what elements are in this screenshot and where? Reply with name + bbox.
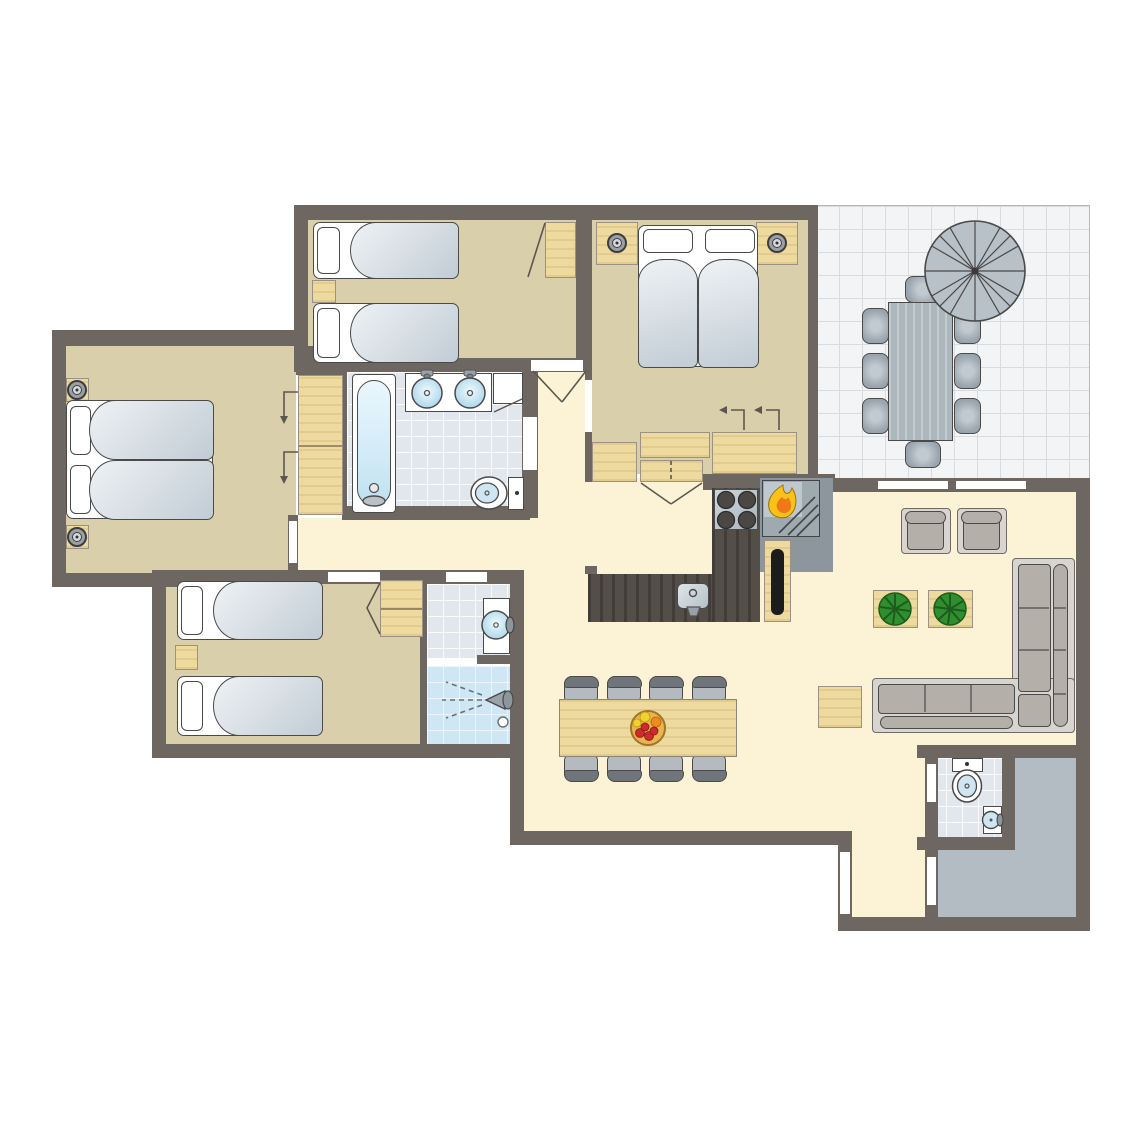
stove xyxy=(714,489,758,530)
sofa-back-column xyxy=(1053,564,1068,727)
armchair-back xyxy=(905,511,946,524)
wall-living-bottom xyxy=(510,831,852,845)
wall-master-top xyxy=(52,330,308,346)
blanket xyxy=(638,259,698,368)
closet xyxy=(712,432,797,474)
single-bed xyxy=(177,676,322,736)
pillow xyxy=(317,227,340,274)
fireplace-hearth xyxy=(764,482,802,517)
armchair-back xyxy=(961,511,1002,524)
tv xyxy=(771,549,784,615)
door-gap-porch xyxy=(927,857,936,905)
door-gap-bedroom-bottom-left xyxy=(328,572,380,582)
dining-chair xyxy=(564,755,598,781)
pillow xyxy=(317,308,340,358)
wall-bottom-right xyxy=(838,917,1090,931)
single-bed xyxy=(313,222,458,279)
sofa-corner-seat xyxy=(1018,694,1051,727)
shower-floor xyxy=(427,666,510,744)
armchair xyxy=(957,508,1007,554)
basin-counter xyxy=(405,373,492,412)
wall-kitchen-stub xyxy=(585,566,597,574)
coffee-table xyxy=(818,686,862,728)
cushion-divider xyxy=(1019,607,1049,609)
pillow xyxy=(705,229,755,253)
blanket xyxy=(89,400,214,460)
wardrobe xyxy=(380,580,423,637)
pillow xyxy=(70,406,91,455)
chair-backrest xyxy=(564,676,599,688)
porch-floor-upper xyxy=(1015,758,1076,845)
dining-chair xyxy=(649,755,683,781)
cushion-divider xyxy=(970,685,972,712)
double-bed xyxy=(638,225,758,367)
bathtub xyxy=(357,380,391,506)
blanket xyxy=(213,581,323,640)
sofa-seat-row xyxy=(878,684,1015,714)
wall-block-right xyxy=(510,570,524,758)
wall-block-bottom xyxy=(152,744,524,758)
wall-wc-bottom xyxy=(917,837,1015,850)
blanket xyxy=(350,303,459,363)
single-bed xyxy=(177,581,322,640)
bathroom-shelf xyxy=(493,373,523,404)
armchair xyxy=(901,508,951,554)
door-gap-bedroom-top-right xyxy=(585,380,592,432)
chair-backrest xyxy=(564,770,599,782)
wardrobe-divider xyxy=(299,445,342,447)
porch-floor-lower xyxy=(938,845,1076,917)
window-terrace-door-1 xyxy=(878,481,948,489)
door-gap-entrance xyxy=(840,852,850,914)
door-gap-bathroom xyxy=(523,417,537,470)
closet xyxy=(592,442,637,482)
outdoor-chair xyxy=(954,308,981,344)
outdoor-chair xyxy=(862,308,889,344)
plant-table xyxy=(928,590,973,628)
outdoor-chair xyxy=(862,353,889,389)
sofa-seat-column xyxy=(1018,564,1051,692)
outdoor-chair xyxy=(905,276,941,303)
wardrobe xyxy=(298,375,343,515)
corridor-floor xyxy=(296,518,538,570)
wc-toilet-tank xyxy=(952,758,983,772)
cushion-divider xyxy=(924,685,926,712)
pillow xyxy=(181,586,203,635)
wall-shower-divider xyxy=(477,655,510,664)
wall-bedroom-divider xyxy=(576,205,592,372)
pillow xyxy=(181,681,203,731)
outdoor-chair xyxy=(905,441,941,468)
hall-floor xyxy=(538,372,585,478)
nightstand xyxy=(66,378,89,402)
nightstand xyxy=(756,222,798,265)
dining-chair xyxy=(692,755,726,781)
chair-backrest xyxy=(607,676,642,688)
wall-wc-top xyxy=(917,745,1076,758)
blanket xyxy=(89,460,214,520)
wc-basin-box xyxy=(983,806,1002,834)
wall-top xyxy=(294,205,815,220)
door-gap-wc xyxy=(927,764,936,802)
wardrobe-divider xyxy=(381,608,422,610)
kitchen-sink xyxy=(677,583,709,609)
blanket xyxy=(213,676,323,736)
washroom-basin-counter xyxy=(483,598,510,654)
door-gap-master xyxy=(289,521,297,563)
cushion-divider xyxy=(1019,649,1049,651)
outdoor-table xyxy=(888,302,953,441)
nightstand xyxy=(596,222,638,265)
dining-chair xyxy=(607,755,641,781)
sofa-back-row xyxy=(880,716,1013,729)
chair-backrest xyxy=(649,770,684,782)
outdoor-chair xyxy=(862,398,889,434)
wall-living-left xyxy=(510,758,524,831)
blanket xyxy=(350,222,459,279)
cushion-divider xyxy=(1054,649,1066,651)
cushion-divider xyxy=(1054,693,1066,695)
dining-table xyxy=(559,699,737,757)
door-gap-bedroom-top-left xyxy=(531,360,583,371)
fireplace xyxy=(762,480,820,537)
floor-plan xyxy=(0,0,1145,1145)
nightstand xyxy=(312,280,336,303)
outdoor-chair xyxy=(954,398,981,434)
outdoor-chair xyxy=(954,353,981,389)
closet xyxy=(640,460,703,482)
window-terrace-door-2 xyxy=(956,481,1026,489)
single-bed xyxy=(313,303,458,363)
chair-backrest xyxy=(607,770,642,782)
chair-backrest xyxy=(649,676,684,688)
wall-right xyxy=(1076,478,1090,931)
door-gap-washroom xyxy=(446,572,487,582)
entrance-hall-floor xyxy=(852,745,925,917)
pillow xyxy=(643,229,693,253)
pillow xyxy=(70,465,91,514)
wall-block-left xyxy=(152,570,166,758)
chair-backrest xyxy=(692,676,727,688)
nightstand xyxy=(66,525,89,549)
wall-wc-right xyxy=(1002,745,1015,850)
wardrobe xyxy=(545,222,576,278)
double-bed xyxy=(66,400,213,519)
chair-backrest xyxy=(692,770,727,782)
nightstand xyxy=(175,645,198,670)
closet xyxy=(640,432,710,458)
toilet-tank xyxy=(508,477,524,510)
wall-bedroom2-terrace xyxy=(808,205,818,490)
cushion-divider xyxy=(1054,607,1066,609)
wall-master-left xyxy=(52,330,66,587)
blanket xyxy=(698,259,759,368)
plant-table xyxy=(873,590,918,628)
